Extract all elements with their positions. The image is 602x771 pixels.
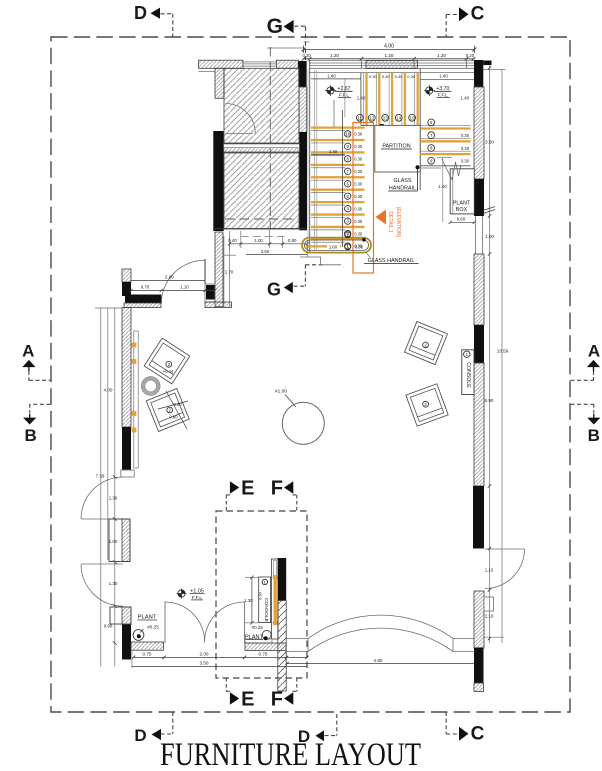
svg-text:4.00: 4.00 <box>384 44 394 50</box>
svg-text:0.60: 0.60 <box>457 217 466 222</box>
svg-text:10: 10 <box>345 131 350 136</box>
svg-text:D: D <box>134 726 146 745</box>
svg-text:1.70: 1.70 <box>225 270 234 275</box>
svg-text:0.30: 0.30 <box>354 194 363 199</box>
svg-text:1.40: 1.40 <box>357 96 366 101</box>
svg-text:G: G <box>267 15 283 38</box>
svg-text:1.40: 1.40 <box>439 73 448 78</box>
svg-text:0.30: 0.30 <box>382 74 391 79</box>
svg-text:13.59: 13.59 <box>497 349 509 354</box>
svg-text:F: F <box>271 689 283 711</box>
svg-text:1.00: 1.00 <box>254 238 263 243</box>
svg-text:A: A <box>22 342 34 361</box>
svg-text:1.20: 1.20 <box>330 53 339 58</box>
svg-text:0.20: 0.20 <box>206 285 215 290</box>
svg-text:2.00: 2.00 <box>200 652 209 657</box>
svg-text:0.30: 0.30 <box>259 592 263 599</box>
svg-text:#0.25: #0.25 <box>147 625 159 630</box>
svg-text:0.30: 0.30 <box>354 132 363 137</box>
svg-text:D: D <box>134 3 147 23</box>
svg-text:0.75: 0.75 <box>143 652 152 657</box>
svg-text:0.80: 0.80 <box>169 415 178 420</box>
svg-text:1.60: 1.60 <box>329 245 338 250</box>
svg-text:C: C <box>471 4 485 25</box>
svg-text:B: B <box>24 426 36 445</box>
svg-text:E: E <box>241 478 254 500</box>
svg-text:4.00: 4.00 <box>104 388 113 393</box>
svg-text:#0.25: #0.25 <box>252 625 264 630</box>
svg-text:15: 15 <box>410 115 415 120</box>
svg-text:A: A <box>588 342 600 361</box>
svg-text:0.30: 0.30 <box>355 245 364 250</box>
svg-text:7.39: 7.39 <box>96 474 105 479</box>
svg-text:13: 13 <box>383 115 388 120</box>
svg-text:D: D <box>298 727 310 746</box>
svg-text:GLASS HANDRAIL: GLASS HANDRAIL <box>368 258 415 264</box>
svg-text:C: C <box>471 724 485 745</box>
svg-text:0.30: 0.30 <box>354 181 363 186</box>
svg-text:CONSOLE: CONSOLE <box>465 362 471 388</box>
svg-text:0.20: 0.20 <box>466 53 475 58</box>
svg-text:0.30: 0.30 <box>461 146 470 151</box>
svg-text:1.30: 1.30 <box>109 581 118 586</box>
svg-text:0.80: 0.80 <box>288 238 297 243</box>
svg-text:11: 11 <box>358 115 363 120</box>
svg-text:0.30: 0.30 <box>354 144 363 149</box>
svg-text:0.20: 0.20 <box>303 53 312 58</box>
svg-text:1.40: 1.40 <box>461 96 470 101</box>
svg-text:4.80: 4.80 <box>374 658 383 663</box>
svg-text:1.00: 1.00 <box>485 234 494 239</box>
svg-text:12: 12 <box>369 115 374 120</box>
svg-text:0.30: 0.30 <box>461 159 470 164</box>
svg-text:G: G <box>267 280 281 300</box>
svg-text:0.90: 0.90 <box>104 624 113 629</box>
svg-text:1.40: 1.40 <box>329 149 338 154</box>
svg-text:0.30: 0.30 <box>407 74 416 79</box>
svg-text:3.50: 3.50 <box>485 140 494 145</box>
svg-text:0.30: 0.30 <box>395 74 404 79</box>
svg-text:FURNITURE LAYOUT: FURNITURE LAYOUT <box>160 737 421 771</box>
svg-text:F: F <box>271 478 283 500</box>
svg-text:2.00: 2.00 <box>165 274 174 279</box>
svg-text:(ELEVATION): (ELEVATION) <box>395 207 401 238</box>
svg-text:6.90: 6.90 <box>485 398 494 403</box>
svg-text:PARTITION: PARTITION <box>382 144 410 150</box>
svg-text:B: B <box>588 426 600 445</box>
svg-text:PLANT: PLANT <box>453 201 471 207</box>
svg-text:0.30: 0.30 <box>354 219 363 224</box>
svg-text:E: E <box>241 689 254 711</box>
svg-text:HANDRAIL: HANDRAIL <box>389 186 416 192</box>
svg-text:14: 14 <box>396 115 401 120</box>
svg-text:0.30: 0.30 <box>354 231 363 236</box>
svg-text:0.75: 0.75 <box>259 652 268 657</box>
svg-text:+0.44: +0.44 <box>163 369 174 374</box>
svg-text:2.50: 2.50 <box>261 249 270 254</box>
svg-text:0.70: 0.70 <box>141 285 150 290</box>
svg-text:0.30: 0.30 <box>369 74 378 79</box>
svg-text:1.10: 1.10 <box>485 614 494 619</box>
svg-text:1.10: 1.10 <box>180 285 189 290</box>
svg-text:#1.00: #1.00 <box>275 389 287 395</box>
svg-text:BOX: BOX <box>456 207 468 213</box>
svg-text:1.40: 1.40 <box>327 73 336 78</box>
svg-text:1.30: 1.30 <box>109 496 118 501</box>
svg-text:GLASS: GLASS <box>394 178 412 184</box>
svg-text:0.30: 0.30 <box>461 133 470 138</box>
svg-text:1.30: 1.30 <box>244 598 253 603</box>
svg-text:1.20: 1.20 <box>385 53 394 58</box>
svg-text:CONSOLE: CONSOLE <box>263 598 269 623</box>
svg-text:0.30: 0.30 <box>354 169 363 174</box>
svg-text:1.00: 1.00 <box>109 539 118 544</box>
svg-text:1.10: 1.10 <box>485 568 494 573</box>
svg-text:1.20: 1.20 <box>437 53 446 58</box>
svg-text:3.50: 3.50 <box>200 661 209 666</box>
svg-text:DETAIL 1: DETAIL 1 <box>387 211 393 232</box>
svg-text:0.30: 0.30 <box>354 206 363 211</box>
svg-text:0.30: 0.30 <box>354 157 363 162</box>
